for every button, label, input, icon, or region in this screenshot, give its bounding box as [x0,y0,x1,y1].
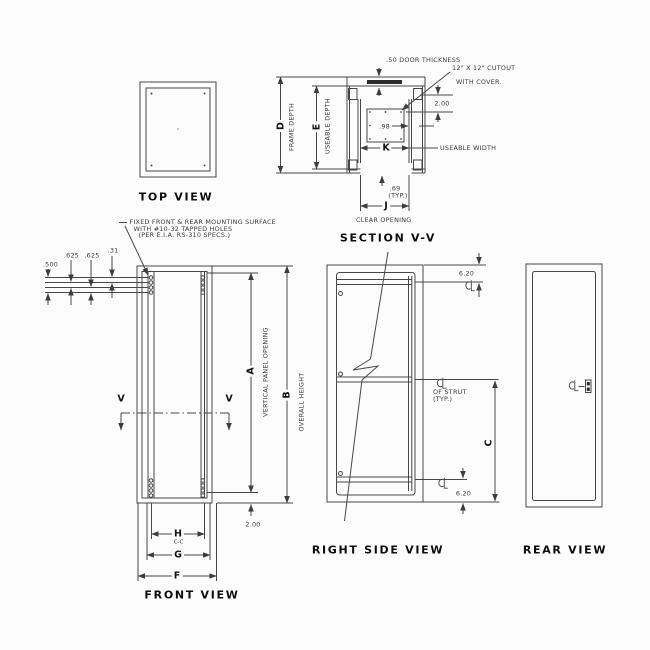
dim-625-a: .625 [64,252,79,259]
dim-625-b: .625 [84,252,99,259]
right-side-view-drawing [327,252,500,521]
rear-view-title: REAR VIEW [523,546,607,553]
dim-letter-f: F [172,573,183,580]
right-side-view-title: RIGHT SIDE VIEW [312,546,444,553]
vertical-panel-opening-label: VERTICAL PANEL OPENING [263,327,270,417]
dim-98: .98 [378,123,391,130]
useable-depth-label: USEABLE DEPTH [324,98,331,154]
centerline-icon [569,380,578,390]
dim-letter-e: E [313,121,320,132]
dim-letter-g: G [172,552,184,559]
useable-width-label: USEABLE WIDTH [440,145,496,152]
clear-opening-label: CLEAR OPENING [356,217,411,224]
strut-note-line2: (TYP.) [433,396,452,403]
rear-view-drawing [526,264,602,507]
section-vv-drawing [276,68,453,211]
dim-letter-b: B [284,389,291,400]
top-view-title: TOP VIEW [139,193,214,200]
dim-letter-h: H [172,531,184,538]
dim-200-bottom: 2.00 [245,521,260,528]
dim-200-cutout: 2.00 [433,100,450,107]
engineering-drawing-page: TOP VIEW SECTION V-V FRONT VIEW RIGHT SI… [0,0,650,650]
dim-69-typ: (TYP.) [388,192,407,199]
mounting-note-line3: (PER E.I.A. RS-310 SPECS.) [139,232,231,239]
dim-letter-d: D [278,120,285,132]
section-cut-v-left: V [115,396,126,403]
dim-h-sub-cc: C-C [173,539,184,546]
dim-letter-k: K [380,145,391,152]
dim-500: .500 [43,262,58,269]
frame-depth-label: FRAME DEPTH [288,102,295,150]
front-view-title: FRONT VIEW [144,591,239,598]
dim-620-top: 6.20 [458,270,475,277]
section-cut-v-right: V [223,396,234,403]
dim-620-bottom: 6.20 [455,491,472,498]
dim-31: .31 [108,248,119,255]
cutout-note-line1: 12" X 12" CUTOUT [452,65,515,72]
section-vv-title: SECTION V-V [340,235,436,242]
door-thickness-note: .50 DOOR THICKNESS [386,57,460,64]
dim-letter-j: J [382,202,390,209]
dim-letter-a: A [248,365,255,376]
top-view-drawing [140,82,216,177]
cutout-note-line2: WITH COVER. [456,79,502,86]
overall-height-label: OVERALL HEIGHT [299,372,306,431]
dim-letter-c: C [486,438,493,449]
